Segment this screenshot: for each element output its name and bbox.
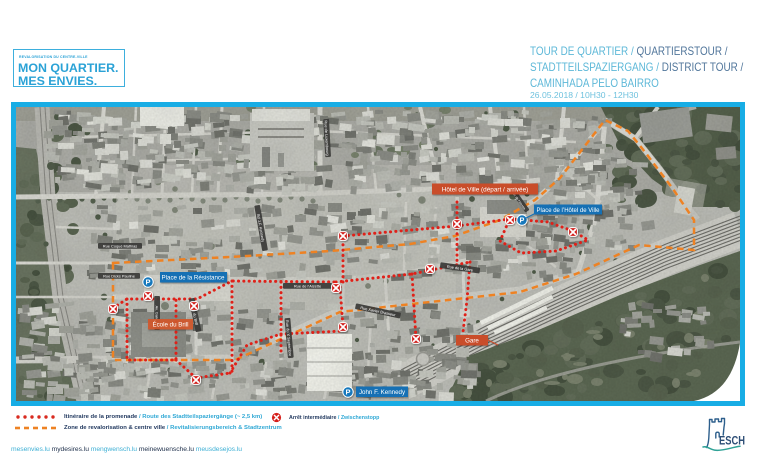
- svg-text:Rue Dicks Pauline: Rue Dicks Pauline: [103, 274, 135, 279]
- svg-text:Rue Coqué Mathias: Rue Coqué Mathias: [103, 244, 137, 249]
- svg-text:École du Brill: École du Brill: [152, 322, 188, 329]
- svg-text:P: P: [345, 388, 350, 397]
- svg-text:P: P: [519, 216, 524, 225]
- svg-text:ESCH: ESCH: [719, 436, 745, 448]
- svg-text:Place de la Résistance: Place de la Résistance: [162, 275, 226, 282]
- svg-text:Hôtel de Ville (départ / arriv: Hôtel de Ville (départ / arrivée): [442, 187, 529, 194]
- svg-text:Gare: Gare: [465, 338, 479, 345]
- svg-text:P: P: [145, 278, 150, 287]
- svg-text:Av. Gare: Av. Gare: [154, 306, 158, 321]
- svg-text:John F. Kennedy: John F. Kennedy: [359, 389, 406, 396]
- svg-text:Rue de l’Alzette: Rue de l’Alzette: [294, 284, 321, 289]
- svg-text:Place de l’Hôtel de Ville: Place de l’Hôtel de Ville: [537, 208, 601, 214]
